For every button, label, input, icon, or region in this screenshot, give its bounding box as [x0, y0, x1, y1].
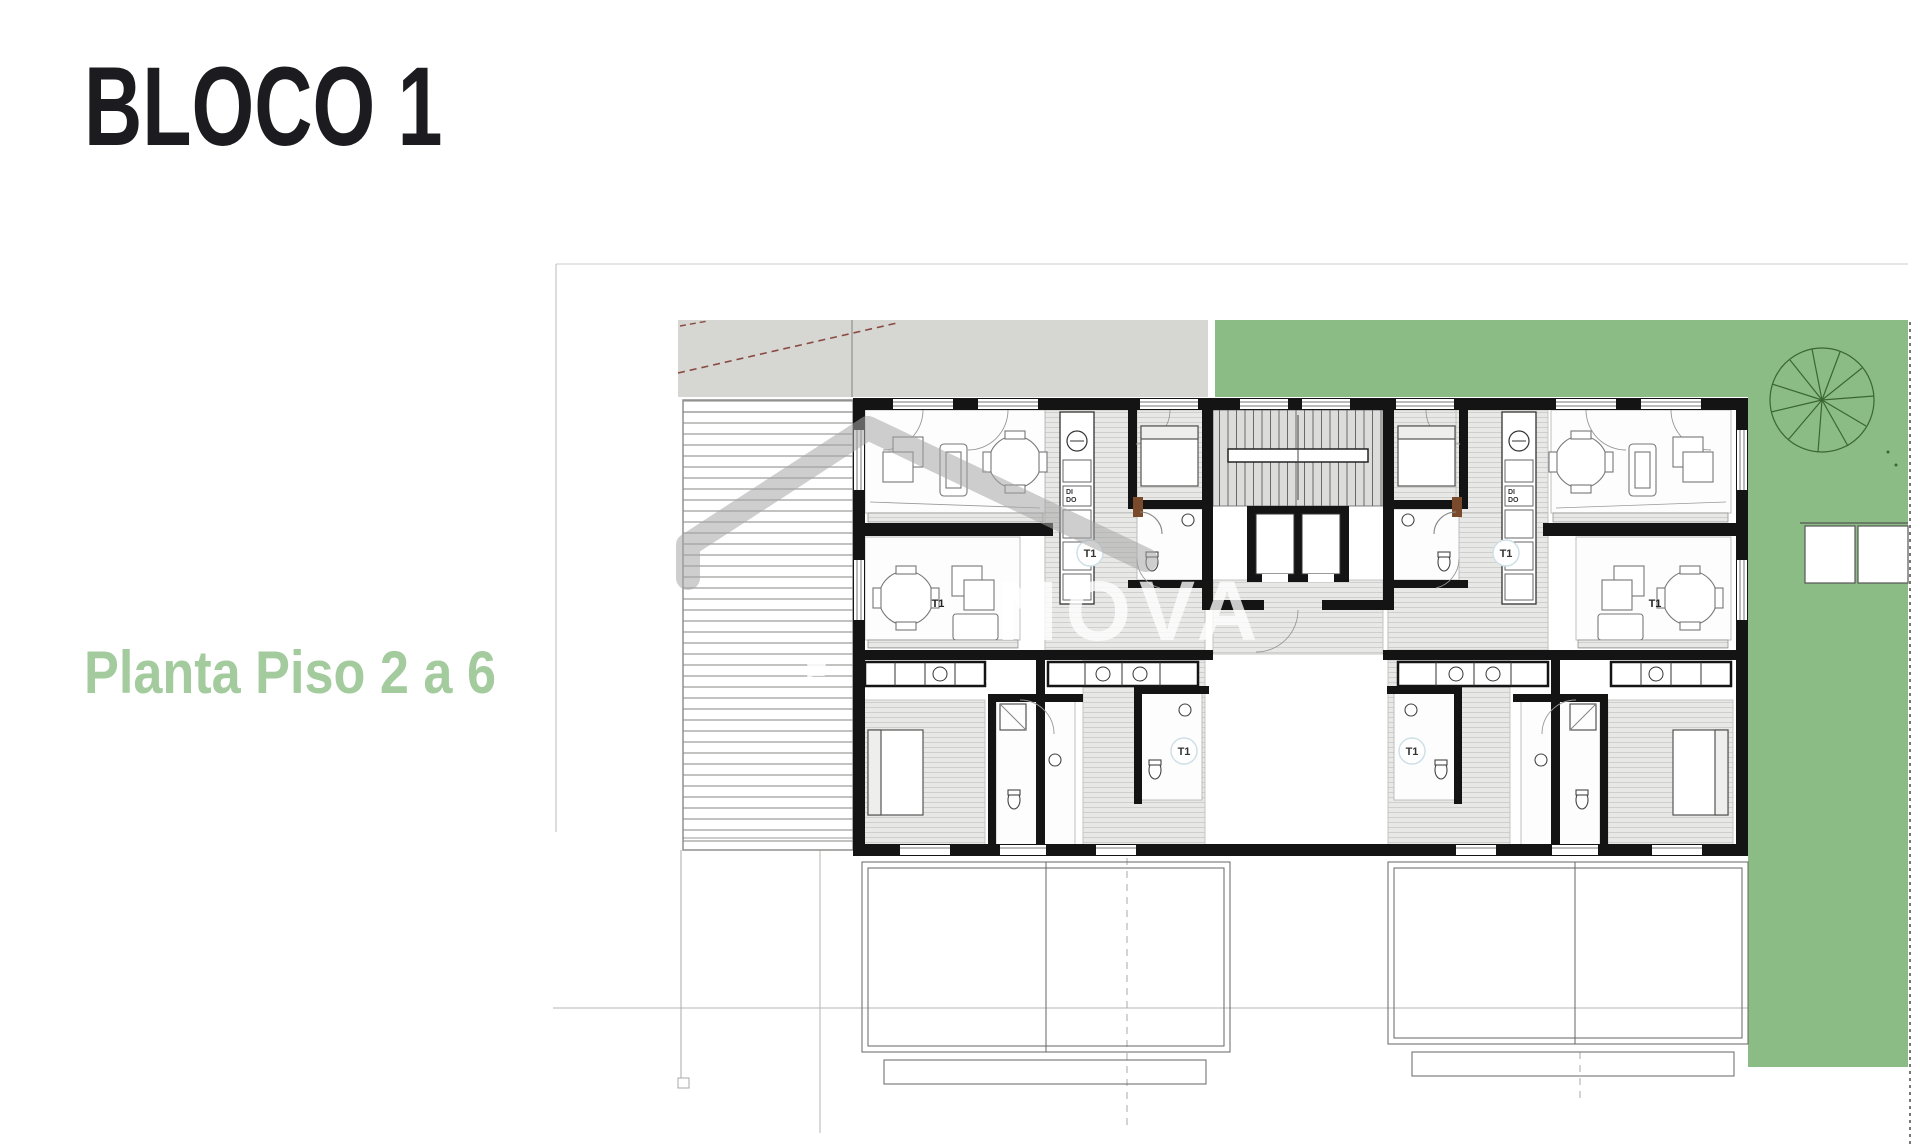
- watermark-text: NOVA: [997, 564, 1265, 658]
- parking-space: [1858, 526, 1908, 583]
- svg-text:DO: DO: [1508, 497, 1519, 504]
- floor-plan: DI DO DI DO: [0, 0, 1920, 1148]
- watermark-fragment: E: [805, 656, 828, 694]
- washbasin-icon: [1402, 514, 1414, 526]
- t1-badge: T1: [1399, 738, 1425, 764]
- bed-icon: [1673, 730, 1728, 815]
- kitchen-row-lower-mid-left: [1048, 662, 1198, 686]
- bath-cabinet: [1133, 497, 1143, 517]
- bed-icon: [868, 730, 923, 815]
- kitchen-row-lower-right: [1611, 662, 1731, 686]
- t1-badge: T1: [1171, 738, 1197, 764]
- washbasin-icon: [1179, 704, 1191, 716]
- svg-text:T1: T1: [1406, 746, 1419, 758]
- parking-space: [1805, 526, 1855, 583]
- bed-icon: [1141, 426, 1198, 486]
- t1-label: T1: [932, 598, 945, 610]
- washbasin-icon: [1405, 704, 1417, 716]
- kitchen-column-right: DI DO: [1502, 412, 1536, 604]
- svg-text:T1: T1: [1178, 746, 1191, 758]
- dining-table-icon: [879, 571, 933, 625]
- svg-text:DO: DO: [1066, 497, 1077, 504]
- bathroom-lower-right: [1521, 700, 1600, 847]
- dining-table-icon: [1555, 436, 1607, 488]
- washbasin-icon: [1049, 754, 1061, 766]
- dining-table-icon: [1663, 571, 1717, 625]
- watermark-fragment: SA: [985, 660, 1047, 693]
- bathroom-lower-left: [996, 700, 1075, 847]
- kitchen-row-lower-left: [865, 662, 985, 686]
- bed-icon: [1398, 426, 1455, 486]
- svg-text:DI: DI: [1066, 489, 1073, 496]
- stair-core: [1213, 410, 1383, 582]
- t1-badge: T1: [1493, 540, 1519, 566]
- parking-spaces: [1800, 523, 1908, 583]
- kitchen-row-lower-mid-right: [1398, 662, 1548, 686]
- lower-terraces: [862, 862, 1748, 1084]
- svg-text:T1: T1: [1084, 548, 1097, 560]
- bath-cabinet: [1452, 497, 1462, 517]
- terrace-area: [678, 320, 1208, 397]
- svg-text:T1: T1: [1500, 548, 1513, 560]
- washbasin-icon: [1182, 514, 1194, 526]
- washbasin-icon: [1535, 754, 1547, 766]
- svg-text:DI: DI: [1508, 489, 1515, 496]
- t1-label: T1: [1649, 598, 1662, 610]
